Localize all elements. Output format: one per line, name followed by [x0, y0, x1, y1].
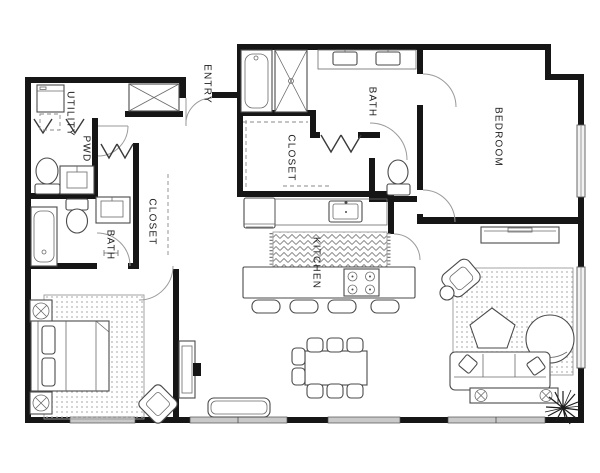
label-utility: UTILITY [64, 91, 75, 137]
label-master-closet: CLOSET [285, 134, 296, 181]
nightstand-icon [30, 392, 52, 414]
label-entry: ENTRY [201, 64, 212, 104]
coat-closet-icon [129, 84, 179, 111]
washer-icon [37, 85, 64, 112]
bath2-toilet-icon [66, 199, 88, 233]
window-bottom-4-icon [448, 417, 545, 423]
fridge-icon [244, 198, 275, 228]
media-dresser-icon [481, 227, 559, 243]
kitchen-island-icon [243, 267, 415, 298]
shower-icon [275, 50, 307, 112]
kitchen-sink-icon [329, 201, 362, 222]
sofa-icon [450, 352, 550, 390]
double-vanity-icon [318, 50, 416, 69]
window-bottom-2-icon [190, 417, 287, 423]
bench-icon [208, 398, 270, 417]
kitchen-door-icon [394, 234, 420, 260]
master-tub-icon [241, 50, 272, 112]
bed-icon [31, 321, 109, 391]
window-bottom-3-icon [328, 417, 400, 423]
bath2-tub-icon [31, 207, 57, 266]
runner-rug-icon [273, 232, 387, 268]
powder-toilet-icon [35, 158, 60, 194]
cooktop-icon [344, 269, 379, 296]
hall-console-icon [179, 341, 201, 398]
nightstand-icon [30, 300, 52, 322]
hall-bifold-icon [101, 144, 133, 158]
floor-plan: UTILITY PWD ENTRY BATH CLOSET BEDROOM BA… [0, 0, 600, 473]
master-toilet-icon [387, 160, 410, 195]
utility-bifold-icon [34, 119, 84, 133]
label-bedroom: BEDROOM [492, 107, 503, 167]
linen-bifold-icon [321, 135, 361, 152]
floor-plan-svg: UTILITY PWD ENTRY BATH CLOSET BEDROOM BA… [0, 0, 600, 473]
console-table-icon [470, 388, 558, 403]
label-master-bath: BATH [366, 87, 377, 118]
tv-icon [193, 363, 201, 376]
master-bath-door-icon [423, 74, 456, 107]
label-pwd: PWD [80, 136, 91, 163]
label-second-closet: CLOSET [146, 198, 157, 245]
label-second-bath: BATH [104, 230, 115, 261]
powder-vanity-icon [60, 166, 94, 194]
dining-table-icon [305, 351, 367, 385]
toilet-room-door-icon [370, 123, 407, 160]
side-table-icon [440, 286, 454, 300]
label-kitchen: KITCHEN [310, 237, 321, 289]
bar-stools-icon [252, 300, 399, 313]
